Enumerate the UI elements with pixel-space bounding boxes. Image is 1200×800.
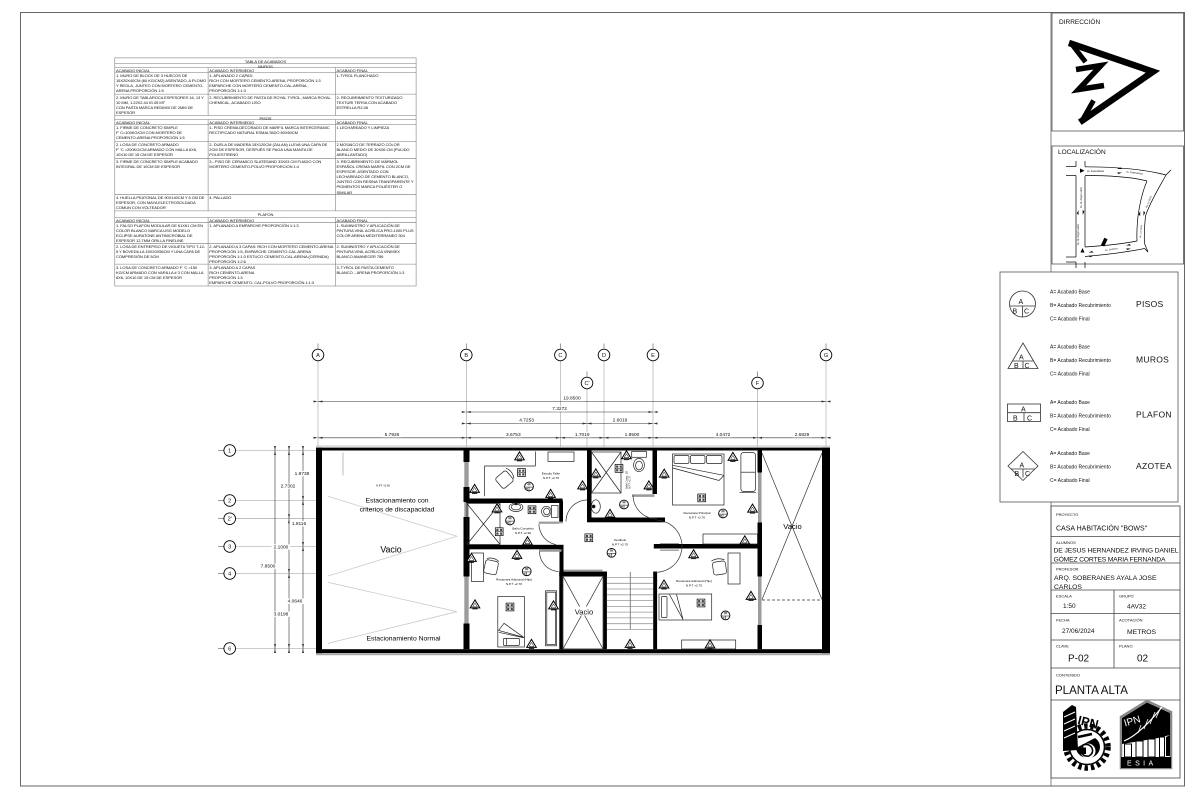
svg-text:ESCALA: ESCALA xyxy=(1056,594,1072,599)
svg-text:B: B xyxy=(1013,309,1018,316)
svg-text:C: C xyxy=(1025,471,1030,478)
svg-text:4.0472: 4.0472 xyxy=(716,432,731,438)
svg-text:ARQ. SOBERANES AYALA JOSE: ARQ. SOBERANES AYALA JOSE xyxy=(1054,575,1157,582)
svg-text:ACOTACIÓN: ACOTACIÓN xyxy=(1119,618,1143,623)
svg-text:Baño Completo: Baño Completo xyxy=(512,527,534,531)
svg-text:Estacionamiento con: Estacionamiento con xyxy=(365,498,428,505)
svg-text:N.P.T +2.90: N.P.T +2.90 xyxy=(515,531,531,535)
svg-text:Vacio: Vacio xyxy=(783,522,801,531)
svg-text:A= Acabado Base: A= Acabado Base xyxy=(1050,451,1090,457)
svg-text:3: 3 xyxy=(228,545,231,551)
svg-text:3.0198: 3.0198 xyxy=(274,612,289,618)
svg-text:A: A xyxy=(1019,299,1024,306)
svg-text:B= Acabado Recubrimiento: B= Acabado Recubrimiento xyxy=(1050,303,1111,309)
svg-text:1.7019: 1.7019 xyxy=(575,432,590,438)
svg-text:Recamara Adicional (Hijo): Recamara Adicional (Hijo) xyxy=(676,579,712,583)
svg-text:METROS: METROS xyxy=(1127,629,1157,636)
svg-text:P-02: P-02 xyxy=(1068,654,1090,665)
svg-text:C': C' xyxy=(584,381,589,387)
svg-text:27/06/2024: 27/06/2024 xyxy=(1062,628,1095,635)
svg-text:B: B xyxy=(1015,471,1020,478)
svg-text:CONTENIDO: CONTENIDO xyxy=(1056,673,1080,678)
svg-text:CASA HABITACIÓN "BOWS": CASA HABITACIÓN "BOWS" xyxy=(1056,524,1148,533)
svg-text:ALUMNOS: ALUMNOS xyxy=(1056,540,1076,545)
svg-text:C= Acabado Final: C= Acabado Final xyxy=(1050,478,1090,484)
svg-text:Estudio Taller: Estudio Taller xyxy=(542,472,561,476)
svg-text:CLAVE: CLAVE xyxy=(1056,644,1069,649)
svg-text:2.1000: 2.1000 xyxy=(274,544,289,550)
svg-text:1.9500: 1.9500 xyxy=(625,432,640,438)
svg-text:2': 2' xyxy=(228,517,232,523)
svg-text:B: B xyxy=(464,353,468,359)
svg-text:Av. Dr. Angel Leaño: Av. Dr. Angel Leaño xyxy=(1077,223,1080,245)
svg-text:2.6019: 2.6019 xyxy=(613,418,628,424)
svg-text:criterios de discapacidad: criterios de discapacidad xyxy=(360,507,435,514)
svg-text:MUROS: MUROS xyxy=(1136,355,1169,365)
svg-text:2: 2 xyxy=(228,499,231,505)
svg-text:4.7253: 4.7253 xyxy=(519,418,534,424)
svg-text:A: A xyxy=(1020,463,1025,470)
svg-text:C: C xyxy=(1025,363,1030,370)
svg-text:C: C xyxy=(1027,415,1032,422)
svg-text:ESIA: ESIA xyxy=(1127,761,1157,768)
svg-text:AZOTEA: AZOTEA xyxy=(1136,461,1172,471)
svg-text:1:50: 1:50 xyxy=(1063,603,1076,610)
svg-text:FECHA: FECHA xyxy=(1056,618,1070,623)
svg-text:A: A xyxy=(1021,407,1026,414)
svg-text:CARLOS: CARLOS xyxy=(1054,584,1082,591)
svg-text:B= Acabado Recubrimiento: B= Acabado Recubrimiento xyxy=(1050,414,1111,420)
svg-text:A= Acabado Base: A= Acabado Base xyxy=(1050,345,1090,351)
svg-text:N.P.T +2.70: N.P.T +2.70 xyxy=(686,584,702,588)
svg-text:GRUPO: GRUPO xyxy=(1119,594,1134,599)
svg-text:N.P.T +2.70: N.P.T +2.70 xyxy=(629,475,632,489)
svg-text:A= Acabado Base: A= Acabado Base xyxy=(1050,290,1090,296)
svg-text:4.0646: 4.0646 xyxy=(288,599,303,605)
svg-text:Av. Dr. Angel Leaño: Av. Dr. Angel Leaño xyxy=(1080,186,1083,208)
svg-text:N.P.T +2.70: N.P.T +2.70 xyxy=(689,516,705,520)
svg-text:Vestibulo: Vestibulo xyxy=(614,538,627,542)
svg-text:F: F xyxy=(756,381,760,387)
svg-text:Vacio: Vacio xyxy=(575,608,593,617)
svg-text:LOCALIZACIÓN: LOCALIZACIÓN xyxy=(1058,147,1106,156)
svg-text:1.9738: 1.9738 xyxy=(295,471,310,477)
svg-text:GÓMEZ CORTES MARIA FERNANDA: GÓMEZ CORTES MARIA FERNANDA xyxy=(1054,555,1166,564)
svg-text:7.3272: 7.3272 xyxy=(552,406,567,412)
svg-text:02: 02 xyxy=(1137,654,1149,665)
svg-text:C= Acabado Final: C= Acabado Final xyxy=(1050,317,1090,323)
svg-text:N.P.T +2.70: N.P.T +2.70 xyxy=(612,543,628,547)
svg-text:PISOS: PISOS xyxy=(1136,299,1164,309)
svg-text:1.8116: 1.8116 xyxy=(292,521,307,527)
svg-text:C= Acabado Final: C= Acabado Final xyxy=(1050,427,1090,433)
svg-text:D: D xyxy=(602,353,606,359)
svg-text:Vacio: Vacio xyxy=(380,545,401,555)
svg-text:DE JESUS HERNANDEZ IRVING DANI: DE JESUS HERNANDEZ IRVING DANIEL xyxy=(1054,548,1179,555)
svg-text:7.8500: 7.8500 xyxy=(261,564,276,570)
svg-text:4: 4 xyxy=(228,572,231,578)
svg-text:B: B xyxy=(1014,363,1019,370)
svg-text:PROFESOR: PROFESOR xyxy=(1056,567,1079,572)
svg-text:2.7302: 2.7302 xyxy=(281,484,296,490)
svg-text:B: B xyxy=(1013,415,1018,422)
svg-text:N.P.T +2.70: N.P.T +2.70 xyxy=(543,476,559,480)
svg-text:Estacionamiento Normal: Estacionamiento Normal xyxy=(366,636,441,643)
svg-text:N.P.T +0.05: N.P.T +0.05 xyxy=(376,484,390,488)
svg-text:A= Acabado Base: A= Acabado Base xyxy=(1050,400,1090,406)
svg-text:PLANTA ALTA: PLANTA ALTA xyxy=(1055,685,1128,697)
svg-text:PLAFON: PLAFON xyxy=(1136,410,1172,420)
svg-text:6: 6 xyxy=(228,647,231,653)
svg-text:Av. Federalistas: Av. Federalistas xyxy=(1087,170,1105,173)
svg-text:N.P.T +2.70: N.P.T +2.70 xyxy=(506,582,522,586)
svg-text:PROYECTO: PROYECTO xyxy=(1056,512,1078,517)
svg-text:A: A xyxy=(1019,355,1024,362)
svg-text:PLANO: PLANO xyxy=(1119,644,1133,649)
svg-text:4AV32: 4AV32 xyxy=(1127,604,1146,611)
svg-text:DIRRECCIÓN: DIRRECCIÓN xyxy=(1059,17,1100,26)
svg-text:A: A xyxy=(316,353,320,359)
svg-text:G: G xyxy=(824,353,828,359)
svg-text:1: 1 xyxy=(228,449,231,455)
svg-text:2.6829: 2.6829 xyxy=(795,432,810,438)
svg-text:E: E xyxy=(651,353,655,359)
svg-text:Recamara Principal: Recamara Principal xyxy=(684,511,711,515)
svg-text:5.7926: 5.7926 xyxy=(385,432,400,438)
svg-text:B= Acabado Recubrimiento: B= Acabado Recubrimiento xyxy=(1050,465,1111,471)
svg-text:Recamara Adicional (Hija): Recamara Adicional (Hija) xyxy=(496,578,532,582)
svg-text:C: C xyxy=(558,353,562,359)
svg-text:19.8500: 19.8500 xyxy=(563,396,581,402)
svg-text:C: C xyxy=(1024,309,1029,316)
svg-text:C= Acabado Final: C= Acabado Final xyxy=(1050,372,1090,378)
svg-text:B= Acabado Recubrimiento: B= Acabado Recubrimiento xyxy=(1050,358,1111,364)
svg-text:3.6753: 3.6753 xyxy=(506,432,521,438)
